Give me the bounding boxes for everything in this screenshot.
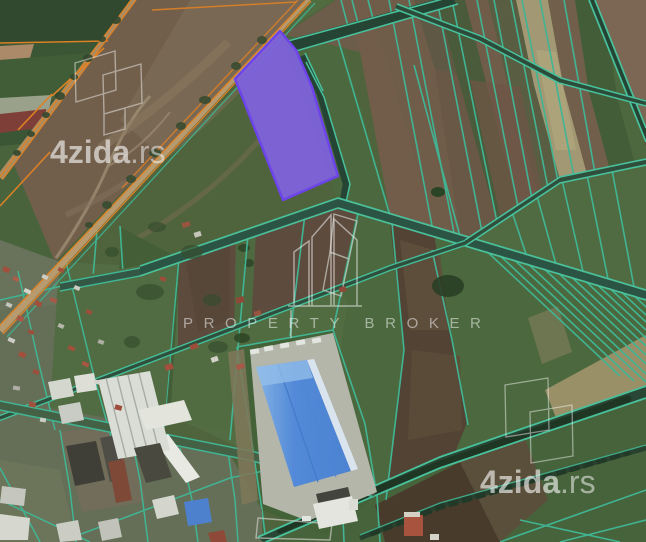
svg-text:4zida.rs: 4zida.rs [50,134,166,170]
svg-text:4zida.rs: 4zida.rs [480,464,596,500]
svg-text:PROPERTY BROKER: PROPERTY BROKER [183,315,492,332]
